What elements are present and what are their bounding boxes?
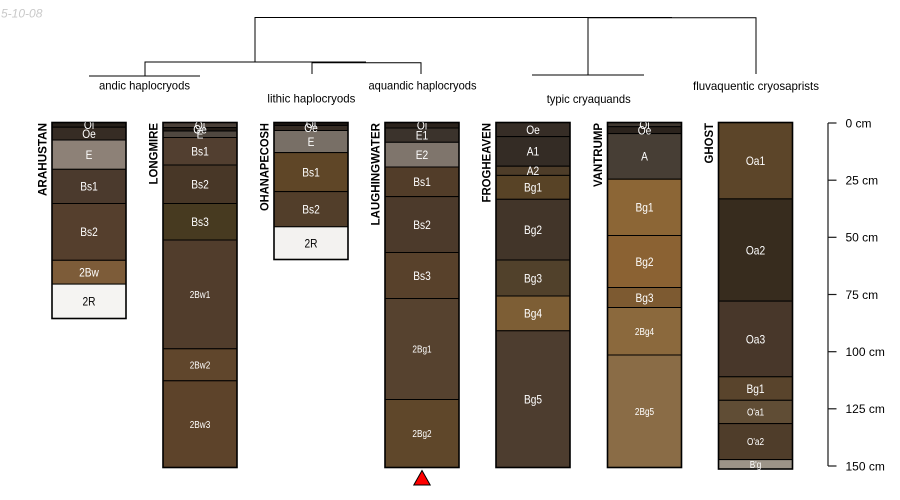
svg-text:O'a1: O'a1	[747, 408, 764, 419]
svg-text:LAUGHINGWATER: LAUGHINGWATER	[369, 123, 383, 226]
svg-text:LONGMIRE: LONGMIRE	[147, 123, 161, 185]
svg-text:A1: A1	[527, 145, 540, 159]
svg-text:Bs2: Bs2	[413, 218, 431, 232]
svg-text:Bg1: Bg1	[746, 382, 764, 396]
svg-text:Oa1: Oa1	[746, 154, 766, 168]
svg-text:Bg1: Bg1	[524, 181, 542, 195]
svg-text:typic cryaquands: typic cryaquands	[547, 92, 631, 106]
svg-text:2Bw2: 2Bw2	[190, 360, 211, 371]
svg-text:A: A	[641, 150, 648, 164]
svg-text:E: E	[197, 128, 204, 142]
svg-text:VANTRUMP: VANTRUMP	[591, 123, 605, 187]
svg-text:Bg3: Bg3	[635, 291, 653, 305]
svg-text:2Bw3: 2Bw3	[190, 420, 211, 431]
svg-text:125 cm: 125 cm	[846, 402, 885, 416]
svg-text:ARAHUSTAN: ARAHUSTAN	[36, 123, 50, 196]
svg-text:E2: E2	[416, 148, 429, 162]
svg-text:Bg1: Bg1	[635, 201, 653, 215]
svg-text:2Bw1: 2Bw1	[190, 290, 211, 301]
svg-text:Oe: Oe	[526, 123, 540, 137]
svg-text:OHANAPECOSH: OHANAPECOSH	[258, 123, 272, 211]
svg-text:2Bg2: 2Bg2	[412, 429, 432, 440]
svg-text:0 cm: 0 cm	[846, 116, 872, 130]
svg-text:100 cm: 100 cm	[846, 345, 885, 359]
svg-text:Oa2: Oa2	[746, 243, 766, 257]
svg-text:2Bg4: 2Bg4	[635, 327, 655, 338]
svg-text:150 cm: 150 cm	[846, 459, 885, 473]
svg-text:Bs1: Bs1	[413, 175, 431, 189]
svg-text:50 cm: 50 cm	[846, 231, 879, 245]
svg-text:Bg4: Bg4	[524, 307, 542, 321]
svg-text:aquandic haplocryods: aquandic haplocryods	[369, 79, 477, 93]
svg-text:2R: 2R	[83, 295, 96, 309]
svg-text:lithic haplocryods: lithic haplocryods	[267, 92, 355, 106]
svg-text:FROGHEAVEN: FROGHEAVEN	[480, 123, 494, 203]
svg-text:Bs1: Bs1	[80, 180, 98, 194]
svg-text:Oa3: Oa3	[746, 332, 766, 346]
svg-text:Bs1: Bs1	[302, 165, 320, 179]
svg-text:B'g: B'g	[750, 460, 762, 471]
svg-text:Bg5: Bg5	[524, 392, 542, 406]
svg-text:Bs2: Bs2	[80, 225, 98, 239]
svg-text:fluvaquentic cryosaprists: fluvaquentic cryosaprists	[693, 79, 819, 93]
svg-text:Bs1: Bs1	[191, 145, 209, 159]
svg-text:Bs2: Bs2	[302, 203, 320, 217]
svg-text:andic haplocryods: andic haplocryods	[99, 79, 190, 93]
svg-text:5-10-08: 5-10-08	[1, 7, 43, 21]
svg-text:Bs2: Bs2	[191, 178, 209, 192]
svg-text:2Bg1: 2Bg1	[412, 345, 432, 356]
svg-text:Bg2: Bg2	[524, 223, 542, 237]
svg-text:2Bg5: 2Bg5	[635, 407, 655, 418]
svg-text:Bg2: Bg2	[635, 255, 653, 269]
svg-text:O'a2: O'a2	[747, 437, 764, 448]
svg-text:2R: 2R	[305, 237, 318, 251]
svg-text:A2: A2	[527, 164, 540, 178]
svg-text:25 cm: 25 cm	[846, 174, 879, 188]
svg-text:GHOST: GHOST	[702, 122, 716, 163]
svg-text:Oe: Oe	[638, 124, 652, 138]
svg-text:Oe: Oe	[82, 127, 96, 141]
svg-text:Oe: Oe	[304, 121, 318, 135]
svg-text:2Bw: 2Bw	[79, 266, 99, 280]
svg-text:Bs3: Bs3	[413, 269, 431, 283]
svg-text:E1: E1	[416, 129, 429, 143]
svg-text:75 cm: 75 cm	[846, 288, 879, 302]
svg-text:Bg3: Bg3	[524, 271, 542, 285]
svg-text:E: E	[86, 148, 93, 162]
svg-text:E: E	[308, 135, 315, 149]
svg-text:Bs3: Bs3	[191, 215, 209, 229]
